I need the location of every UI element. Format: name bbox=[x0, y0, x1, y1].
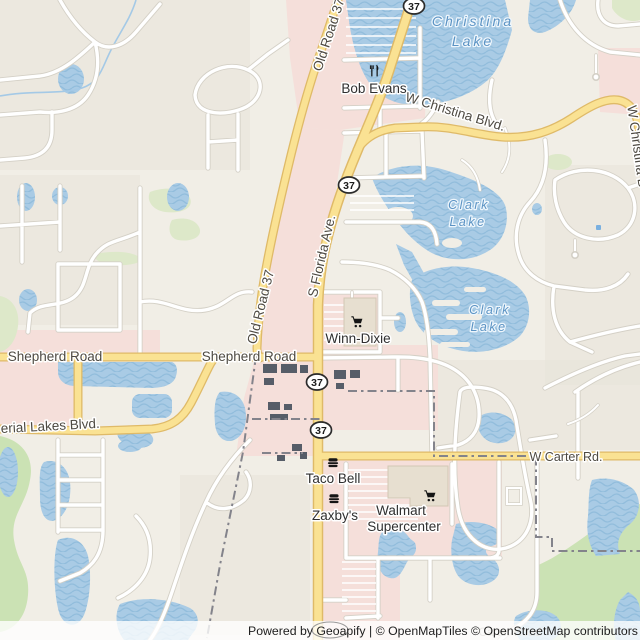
svg-text:Lake: Lake bbox=[449, 215, 486, 229]
attribution-bar[interactable]: Powered by Geoapify | © OpenMapTiles © O… bbox=[0, 621, 640, 640]
route-shield-37-3: 37 bbox=[307, 374, 328, 390]
route-shield-37-1: 37 bbox=[404, 0, 425, 14]
svg-text:37: 37 bbox=[311, 377, 323, 389]
svg-text:Lake: Lake bbox=[470, 320, 507, 334]
svg-text:Zaxby's: Zaxby's bbox=[312, 508, 358, 523]
svg-text:Lake: Lake bbox=[452, 33, 494, 49]
attribution-text[interactable]: Powered by Geoapify | © OpenMapTiles © O… bbox=[248, 624, 638, 638]
svg-text:Supercenter: Supercenter bbox=[367, 519, 441, 534]
svg-text:Bob Evans: Bob Evans bbox=[341, 81, 407, 96]
svg-text:37: 37 bbox=[408, 1, 420, 13]
fast-food-icon bbox=[329, 494, 339, 503]
road-label-w-carter-rd: W Carter Rd. bbox=[530, 450, 603, 464]
route-shield-37-2: 37 bbox=[339, 177, 360, 193]
svg-text:37: 37 bbox=[315, 425, 327, 437]
small-poi-dot bbox=[596, 225, 601, 230]
svg-text:Winn-Dixie: Winn-Dixie bbox=[325, 331, 390, 346]
svg-text:37: 37 bbox=[343, 180, 355, 192]
road-label-shepherd-road-east: Shepherd Road bbox=[202, 349, 297, 364]
svg-text:Walmart: Walmart bbox=[376, 503, 426, 518]
map-viewport[interactable]: Christina Lake Clark Lake Clark Lake Old… bbox=[0, 0, 640, 640]
clark-lake-north-label: Clark bbox=[448, 198, 490, 212]
road-label-shepherd-road-west: Shepherd Road bbox=[8, 349, 103, 364]
fast-food-icon bbox=[328, 458, 338, 467]
route-shield-37-4: 37 bbox=[311, 422, 332, 438]
christina-lake-label: Christina bbox=[432, 13, 514, 29]
map-canvas[interactable]: Christina Lake Clark Lake Clark Lake Old… bbox=[0, 0, 640, 640]
clark-lake-south-label: Clark bbox=[469, 303, 511, 317]
svg-text:Taco Bell: Taco Bell bbox=[306, 471, 361, 486]
